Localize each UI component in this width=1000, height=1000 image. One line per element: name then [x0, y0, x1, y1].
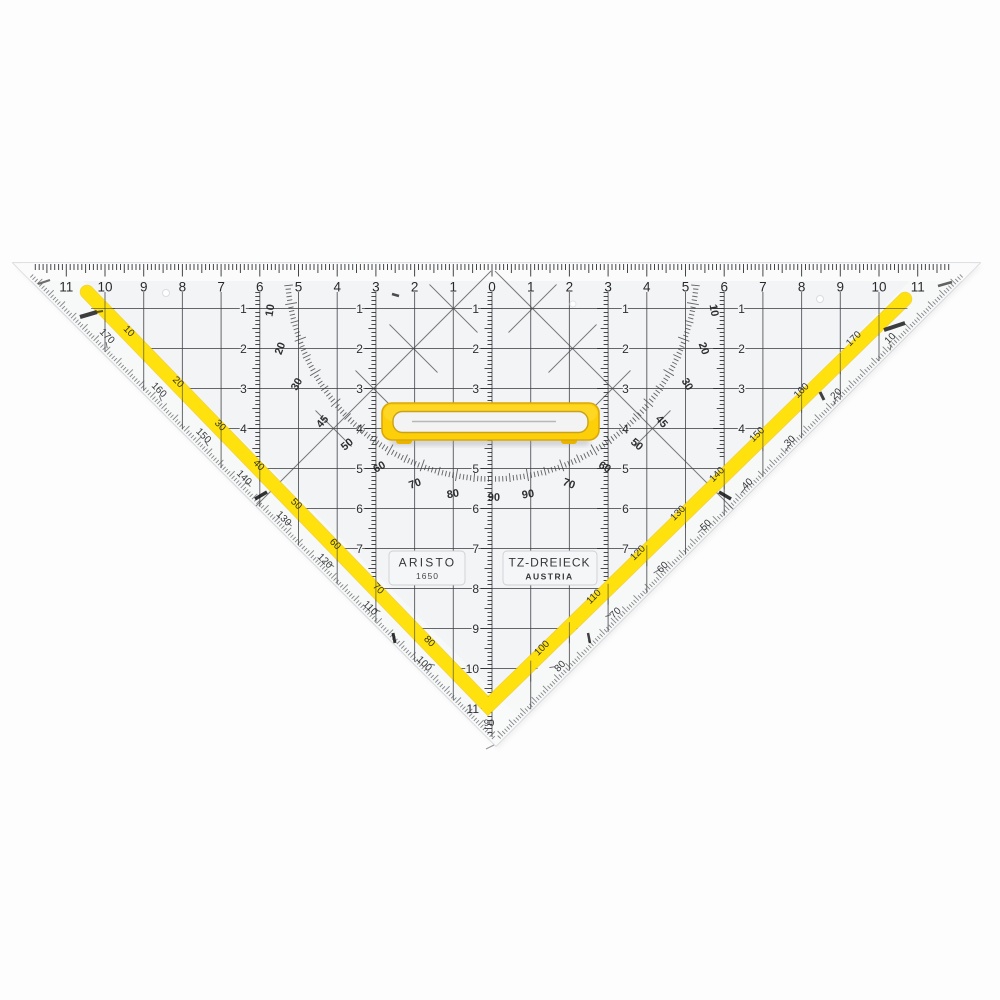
- svg-text:2: 2: [356, 342, 363, 356]
- svg-text:80: 80: [446, 487, 460, 501]
- svg-text:2: 2: [566, 280, 574, 295]
- svg-text:7: 7: [622, 542, 629, 556]
- svg-text:6: 6: [720, 280, 728, 295]
- svg-text:4: 4: [333, 280, 341, 295]
- svg-text:8: 8: [179, 280, 187, 295]
- svg-text:1: 1: [527, 280, 535, 295]
- svg-text:3: 3: [738, 382, 745, 396]
- svg-text:2: 2: [472, 342, 479, 356]
- svg-text:3: 3: [472, 382, 479, 396]
- svg-text:2: 2: [622, 342, 629, 356]
- svg-text:7: 7: [356, 542, 363, 556]
- svg-text:3: 3: [622, 382, 629, 396]
- svg-text:1: 1: [472, 302, 479, 316]
- svg-text:9: 9: [837, 280, 845, 295]
- svg-text:90: 90: [488, 492, 500, 504]
- svg-text:1: 1: [622, 302, 629, 316]
- svg-text:7: 7: [217, 280, 225, 295]
- svg-text:6: 6: [356, 502, 363, 516]
- svg-text:11: 11: [59, 280, 73, 295]
- svg-text:10: 10: [466, 662, 480, 676]
- svg-text:2: 2: [738, 342, 745, 356]
- svg-text:10: 10: [707, 303, 721, 317]
- svg-text:4: 4: [738, 422, 745, 436]
- svg-text:9: 9: [140, 280, 148, 295]
- svg-text:10: 10: [871, 280, 886, 295]
- svg-text:2: 2: [240, 342, 247, 356]
- svg-text:ARISTO: ARISTO: [399, 556, 457, 570]
- svg-text:6: 6: [256, 280, 264, 295]
- svg-text:90: 90: [484, 718, 495, 729]
- svg-text:5: 5: [295, 280, 303, 295]
- svg-text:1650: 1650: [416, 571, 439, 581]
- svg-text:4: 4: [643, 280, 651, 295]
- svg-text:TZ-DREIECK: TZ-DREIECK: [509, 556, 591, 570]
- svg-text:1: 1: [240, 302, 247, 316]
- svg-text:4: 4: [240, 422, 247, 436]
- svg-text:5: 5: [356, 462, 363, 476]
- svg-text:7: 7: [472, 542, 479, 556]
- svg-text:9: 9: [472, 622, 479, 636]
- svg-text:90: 90: [521, 488, 535, 502]
- svg-text:3: 3: [372, 280, 380, 295]
- svg-text:6: 6: [472, 502, 479, 516]
- svg-text:0: 0: [488, 280, 496, 295]
- svg-text:1: 1: [738, 302, 745, 316]
- svg-text:10: 10: [263, 303, 277, 317]
- svg-text:5: 5: [472, 462, 479, 476]
- svg-text:10: 10: [97, 280, 112, 295]
- svg-text:1: 1: [356, 302, 363, 316]
- svg-text:2: 2: [411, 280, 419, 295]
- svg-text:11: 11: [911, 280, 925, 295]
- svg-text:5: 5: [622, 462, 629, 476]
- svg-text:3: 3: [604, 280, 612, 295]
- svg-text:7: 7: [759, 280, 767, 295]
- svg-text:4: 4: [356, 422, 363, 436]
- svg-text:AUSTRIA: AUSTRIA: [525, 572, 573, 582]
- svg-text:5: 5: [682, 280, 690, 295]
- svg-text:8: 8: [798, 280, 806, 295]
- svg-text:3: 3: [240, 382, 247, 396]
- svg-text:3: 3: [356, 382, 363, 396]
- svg-text:1: 1: [450, 280, 458, 295]
- svg-text:8: 8: [472, 582, 479, 596]
- svg-text:6: 6: [622, 502, 629, 516]
